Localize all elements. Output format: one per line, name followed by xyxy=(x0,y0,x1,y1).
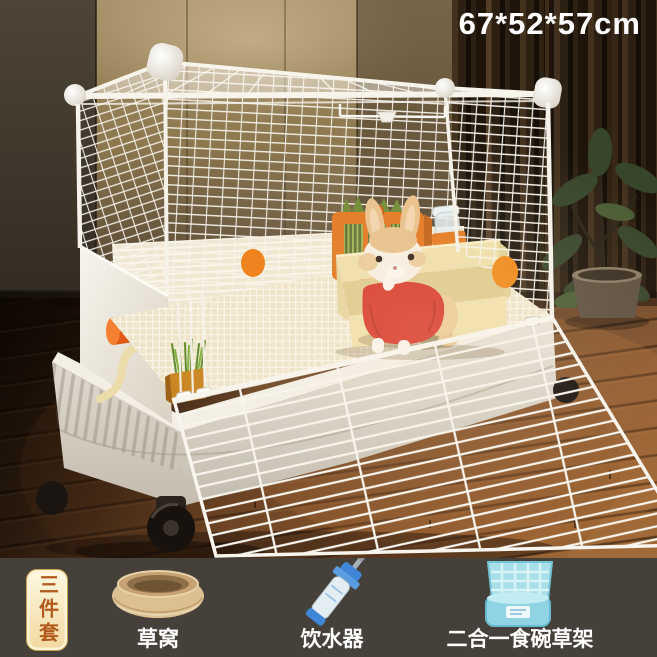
product-item-water-dispenser: 饮水器 xyxy=(276,558,388,657)
bundle-badge: 三件套 xyxy=(26,569,68,651)
accessories-bar: 三件套 草窝 饮水器 xyxy=(0,558,657,657)
water-dispenser-label: 饮水器 xyxy=(276,628,388,652)
grass-nest-image xyxy=(104,558,212,622)
caster-wheel xyxy=(36,481,68,515)
food-bowl-hay-rack-label: 二合一食碗草架 xyxy=(438,628,602,652)
product-photo: 67*52*57cm 三件套 草窝 饮水器 xyxy=(0,0,657,657)
grass-nest-label: 草窝 xyxy=(104,628,212,652)
food-bowl-hay-rack-image xyxy=(480,558,560,632)
product-item-grass-nest: 草窝 xyxy=(104,558,212,657)
dimensions-label: 67*52*57cm xyxy=(459,6,641,42)
corner-ball xyxy=(435,78,455,98)
water-dispenser-image xyxy=(276,558,388,630)
front-left-post xyxy=(78,104,80,248)
product-item-food-bowl-hay-rack: 二合一食碗草架 xyxy=(438,558,602,657)
corner-ball xyxy=(64,84,86,106)
